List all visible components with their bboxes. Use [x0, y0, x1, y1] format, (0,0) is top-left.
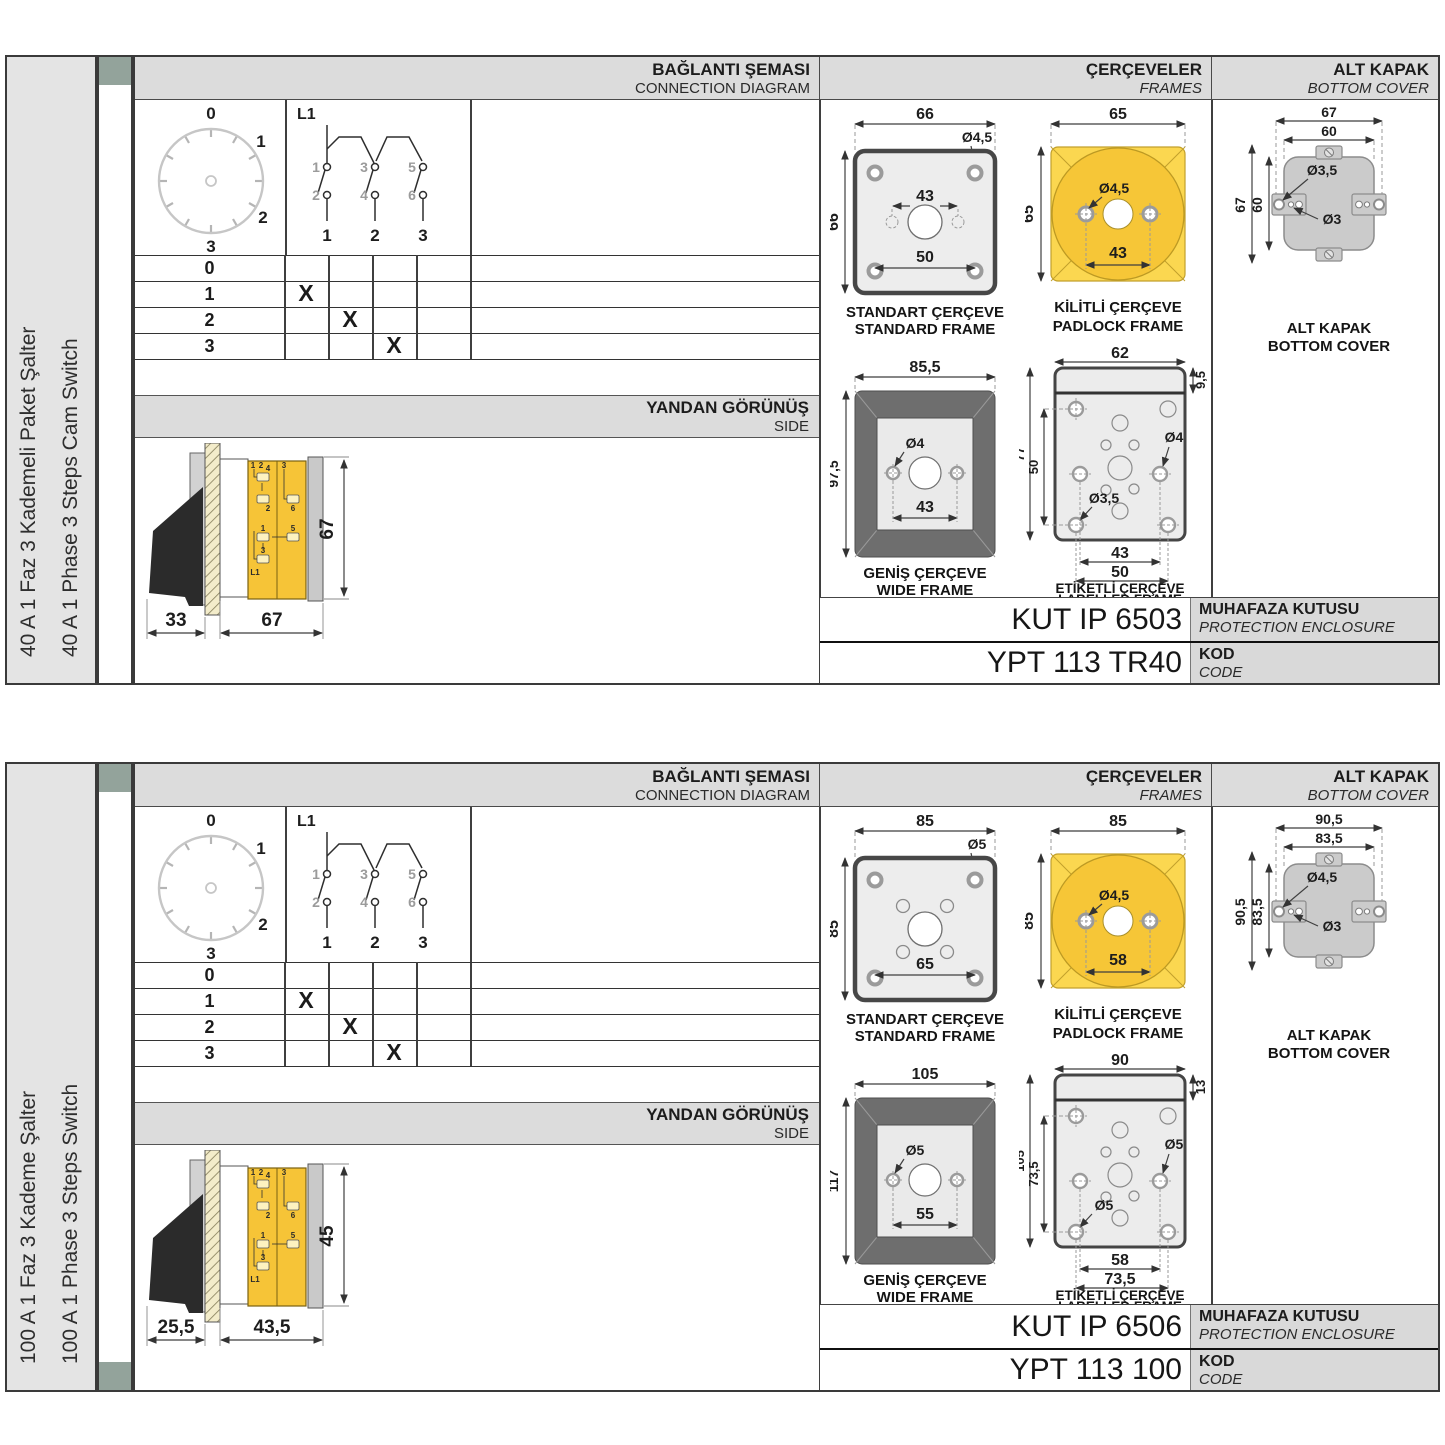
labelled-hole-small-dim: Ø3,5	[1089, 490, 1120, 506]
header-connection-en: CONNECTION DIAGRAM	[135, 787, 810, 805]
table-row: 3 X	[135, 333, 819, 359]
labelled-width-dim: 62	[1111, 347, 1129, 362]
register-mark-bottom	[99, 1362, 131, 1390]
standard-inner-dim: 43	[916, 188, 934, 205]
term-label: 2	[266, 1211, 271, 1220]
terminal-5: 5	[408, 159, 416, 175]
term-label: L1	[250, 1275, 260, 1284]
code-row: YPT 113 TR40 KOD CODE	[820, 641, 1438, 683]
table-row: 1 X	[135, 988, 819, 1014]
padlock-center-hole	[1103, 906, 1133, 936]
row-position: 3	[135, 1041, 284, 1065]
padlock-label-tr: KİLİTLİ ÇERÇEVE	[1054, 299, 1182, 316]
body-depth-dim-label: 43,5	[254, 1317, 291, 1338]
dial-pos-2: 2	[258, 208, 267, 227]
header-frames: ÇERÇEVELER FRAMES	[819, 57, 1211, 100]
wide-width-dim: 85,5	[909, 359, 940, 376]
cover-label-en: BOTTOM COVER	[1268, 1045, 1390, 1062]
dial-pos-1: 1	[256, 839, 265, 858]
terminal-5: 5	[408, 866, 416, 882]
header-frames-en: FRAMES	[820, 80, 1202, 98]
dial-axis	[206, 176, 216, 186]
terminal-6: 6	[408, 894, 416, 910]
header-connection-tr: BAĞLANTI ŞEMASI	[135, 59, 810, 80]
product-code: YPT 113 TR40	[820, 643, 1190, 683]
output-1: 1	[322, 933, 331, 952]
position-dial: 0 1 2 3	[139, 810, 287, 962]
datasheet-main-area: BAĞLANTI ŞEMASI CONNECTION DIAGRAM ÇERÇE…	[133, 55, 1440, 685]
panel-cutaway	[205, 1150, 220, 1322]
padlock-frame-drawing: 85 Ø4,5 58 85 KİLİTLİ ÇERÇEVE PADLOCK FR…	[1025, 812, 1211, 1047]
enclosure-label-en: PROTECTION ENCLOSURE	[1199, 619, 1438, 637]
switching-table: 0 1 X 2 X 3 X	[135, 962, 819, 1067]
term-label: 2	[259, 1168, 264, 1177]
dial-ring	[159, 836, 263, 940]
term-label: 3	[282, 461, 287, 470]
cover-w-inner-dim: 60	[1321, 123, 1337, 139]
padlock-height-dim: 85	[1025, 912, 1037, 930]
connection-circuit: L1 1 2 3 4 5 6 1 2 3	[287, 810, 475, 962]
padlock-height-dim: 65	[1025, 205, 1037, 223]
output-1: 1	[322, 226, 331, 245]
table-row: 0	[135, 255, 819, 281]
wide-label-en: WIDE FRAME	[877, 582, 974, 597]
row-position: 2	[135, 308, 284, 332]
enclosure-row: KUT IP 6506 MUHAFAZA KUTUSU PROTECTION E…	[820, 1304, 1438, 1348]
labelled-bottom-dim2: 73,5	[1104, 1271, 1135, 1288]
term-label: 4	[266, 1171, 271, 1180]
header-cover-tr: ALT KAPAK	[1212, 766, 1429, 787]
standard-label-tr: STANDART ÇERÇEVE	[846, 1011, 1004, 1028]
contact-mark: X	[372, 1039, 416, 1065]
table-row: 0	[135, 962, 819, 988]
wide-height-dim: 117	[830, 1169, 841, 1192]
terminal-1: 1	[312, 866, 320, 882]
row-position: 2	[135, 1015, 284, 1039]
table-row: 2 X	[135, 307, 819, 333]
contact-mark: X	[284, 987, 328, 1013]
product-label-english: 40 A 1 Phase 3 Steps Cam Switch	[59, 338, 83, 657]
standard-hole-dim: Ø5	[968, 836, 987, 852]
standard-height-dim: 85	[830, 920, 842, 938]
header-connection-diagram: BAĞLANTI ŞEMASI CONNECTION DIAGRAM	[135, 57, 819, 100]
switch-handle	[149, 487, 203, 606]
labelled-hole-big-dim: Ø5	[1165, 1136, 1184, 1152]
side-view-title-tr: YANDAN GÖRÜNÜŞ	[135, 1104, 809, 1125]
labelled-frame-drawing: 90 13 Ø5 Ø5	[1019, 1054, 1215, 1312]
terminal-4: 4	[360, 894, 368, 910]
code-label: KOD CODE	[1190, 1350, 1438, 1390]
table-row: 3 X	[135, 1040, 819, 1066]
cover-h-inner-dim: 60	[1249, 197, 1265, 213]
standard-label-en: STANDARD FRAME	[855, 1028, 996, 1045]
product-label-english: 100 A 1 Phase 3 Steps Switch	[59, 1084, 83, 1364]
standard-frame-drawing: 66 Ø4,5 43 50 66 STANDART ÇERÇEV	[830, 105, 1020, 340]
term-label: 4	[266, 464, 271, 473]
table-row: 1 X	[135, 281, 819, 307]
labelled-bottom-dim1: 58	[1111, 1252, 1129, 1269]
dial-axis	[206, 883, 216, 893]
side-view-header: YANDAN GÖRÜNÜŞ SIDE	[135, 395, 819, 438]
datasheet-main-area: BAĞLANTI ŞEMASI CONNECTION DIAGRAM ÇERÇE…	[133, 762, 1440, 1392]
wide-center-hole	[909, 1164, 941, 1196]
term-label: 5	[291, 524, 296, 533]
output-3: 3	[418, 226, 427, 245]
header-frames-tr: ÇERÇEVELER	[820, 59, 1202, 80]
term-label: 3	[261, 546, 266, 555]
terminal-3: 3	[360, 159, 368, 175]
labelled-height-dim: 77	[1019, 447, 1027, 461]
cover-hole-tab-dim: Ø4,5	[1307, 869, 1338, 885]
header-cover-en: BOTTOM COVER	[1212, 80, 1429, 98]
term-label: 1	[261, 1231, 266, 1240]
wide-frame-drawing: 85,5 Ø4 43 97,5 GENİŞ ÇERÇEVE	[830, 357, 1020, 597]
padlock-label-en: PADLOCK FRAME	[1053, 318, 1184, 335]
standard-label-tr: STANDART ÇERÇEVE	[846, 304, 1004, 321]
enclosure-code: KUT IP 6503	[820, 598, 1190, 641]
header-bottom-cover: ALT KAPAK BOTTOM COVER	[1211, 57, 1438, 100]
position-dial: 0 1 2 3	[139, 103, 287, 255]
term-label: 6	[291, 504, 296, 513]
table-col-line	[416, 255, 418, 359]
labelled-inner-v-dim: 50	[1026, 460, 1041, 474]
padlock-width-dim: 65	[1109, 106, 1127, 123]
term-label: 3	[261, 1253, 266, 1262]
product-panel: 40 A 1 Faz 3 Kademeli Paket Şalter 40 A …	[0, 55, 1445, 685]
header-bottom-cover: ALT KAPAK BOTTOM COVER	[1211, 764, 1438, 807]
header-connection-en: CONNECTION DIAGRAM	[135, 80, 810, 98]
output-2: 2	[370, 226, 379, 245]
wide-hole-dim: Ø5	[906, 1142, 925, 1158]
labelled-width-dim: 90	[1111, 1054, 1129, 1069]
code-label-en: CODE	[1199, 1371, 1438, 1389]
cover-label-tr: ALT KAPAK	[1287, 320, 1372, 337]
enclosure-label-tr: MUHAFAZA KUTUSU	[1199, 600, 1438, 619]
row-position: 1	[135, 282, 284, 306]
height-dim-label: 67	[317, 518, 338, 539]
cover-hole-tab-dim: Ø3,5	[1307, 162, 1338, 178]
row-position: 3	[135, 334, 284, 358]
cover-h-outer-dim: 67	[1232, 197, 1248, 213]
header-frames-en: FRAMES	[820, 787, 1202, 805]
terminal-2: 2	[312, 187, 320, 203]
table-col-line	[416, 962, 418, 1066]
padlock-width-dim: 85	[1109, 813, 1127, 830]
wide-frame-drawing: 105 Ø5 55 117 GENİŞ ÇERÇEVE	[830, 1064, 1020, 1304]
terminal-6: 6	[408, 187, 416, 203]
cover-h-outer-dim: 90,5	[1232, 898, 1248, 925]
standard-center-hole	[908, 205, 942, 239]
term-label: 2	[266, 504, 271, 513]
side-view-title-en: SIDE	[135, 1125, 809, 1143]
table-col-line	[284, 962, 286, 1066]
dial-pos-3: 3	[206, 237, 215, 255]
standard-frame-drawing: 85 Ø5 65 85 STANDART ÇERÇEVE	[830, 812, 1020, 1047]
term-label: 5	[291, 1231, 296, 1240]
binding-strip	[97, 762, 133, 1392]
labelled-strip-dim: 9,5	[1193, 371, 1208, 389]
connection-circuit: L1 1 2 3 4 5 6 1 2 3	[287, 103, 475, 255]
labelled-bottom-dim1: 43	[1111, 545, 1129, 562]
cover-label-en: BOTTOM COVER	[1268, 338, 1390, 355]
padlock-holes-dim: 43	[1109, 245, 1127, 262]
term-label: 1	[251, 461, 256, 470]
code-label: KOD CODE	[1190, 643, 1438, 683]
enclosure-label: MUHAFAZA KUTUSU PROTECTION ENCLOSURE	[1190, 598, 1438, 641]
padlock-label-tr: KİLİTLİ ÇERÇEVE	[1054, 1006, 1182, 1023]
contact-mark: X	[372, 332, 416, 358]
standard-center-hole	[908, 912, 942, 946]
row-position: 0	[135, 963, 284, 987]
enclosure-label-tr: MUHAFAZA KUTUSU	[1199, 1307, 1438, 1326]
shaft-housing	[220, 459, 248, 597]
product-code: YPT 113 100	[820, 1350, 1190, 1390]
contact-mark: X	[328, 1013, 372, 1039]
wide-label-en: WIDE FRAME	[877, 1289, 974, 1304]
terminal-2: 2	[312, 894, 320, 910]
dial-pos-0: 0	[206, 104, 215, 123]
row-position: 0	[135, 256, 284, 280]
height-dim-label: 45	[317, 1225, 338, 1247]
standard-height-dim: 66	[830, 213, 842, 231]
term-label: 6	[291, 1211, 296, 1220]
body-depth-dim-label: 67	[261, 610, 282, 631]
cover-h-inner-dim: 83,5	[1249, 898, 1265, 925]
header-frames-tr: ÇERÇEVELER	[820, 766, 1202, 787]
padlock-hole-dim: Ø4,5	[1099, 180, 1130, 196]
labelled-bottom-dim2: 50	[1111, 564, 1129, 581]
padlock-center-hole	[1103, 199, 1133, 229]
cover-w-outer-dim: 90,5	[1315, 812, 1342, 827]
table-col-line	[284, 255, 286, 359]
cover-w-inner-dim: 83,5	[1315, 830, 1342, 846]
output-3: 3	[418, 933, 427, 952]
code-label-tr: KOD	[1199, 645, 1438, 664]
labelled-inner-v-dim: 73,5	[1026, 1161, 1041, 1186]
padlock-label-en: PADLOCK FRAME	[1053, 1025, 1184, 1042]
term-label: 2	[259, 461, 264, 470]
enclosure-row: KUT IP 6503 MUHAFAZA KUTUSU PROTECTION E…	[820, 597, 1438, 641]
enclosure-code: KUT IP 6506	[820, 1305, 1190, 1348]
bottom-cover-drawing: 67 60 67 60	[1232, 105, 1437, 357]
contact-mark: X	[328, 306, 372, 332]
product-panel: 100 A 1 Faz 3 Kademe Şalter 100 A 1 Phas…	[0, 762, 1445, 1392]
table-col-line	[328, 962, 330, 1066]
product-label-turkish: 100 A 1 Faz 3 Kademe Şalter	[17, 1091, 41, 1364]
header-connection-diagram: BAĞLANTI ŞEMASI CONNECTION DIAGRAM	[135, 764, 819, 807]
header-connection-tr: BAĞLANTI ŞEMASI	[135, 766, 810, 787]
panel-cutaway	[205, 443, 220, 615]
product-label-strip: 40 A 1 Faz 3 Kademeli Paket Şalter 40 A …	[5, 55, 97, 685]
side-view-title-tr: YANDAN GÖRÜNÜŞ	[135, 397, 809, 418]
dial-pos-3: 3	[206, 944, 215, 962]
handle-depth-dim-label: 33	[165, 610, 186, 631]
dial-pos-1: 1	[256, 132, 265, 151]
labelled-strip-dim: 13	[1193, 1080, 1208, 1094]
header-cover-tr: ALT KAPAK	[1212, 59, 1429, 80]
table-col-line	[372, 962, 374, 1066]
term-label: 1	[261, 524, 266, 533]
binding-strip	[97, 55, 133, 685]
side-view-header: YANDAN GÖRÜNÜŞ SIDE	[135, 1102, 819, 1145]
row-position: 1	[135, 989, 284, 1013]
product-label-turkish: 40 A 1 Faz 3 Kademeli Paket Şalter	[17, 327, 41, 657]
dial-pos-0: 0	[206, 811, 215, 830]
enclosure-label-en: PROTECTION ENCLOSURE	[1199, 1326, 1438, 1344]
wide-label-tr: GENİŞ ÇERÇEVE	[863, 1272, 986, 1289]
term-label: 1	[251, 1168, 256, 1177]
labelled-hole-small-dim: Ø5	[1095, 1197, 1114, 1213]
cover-hole-small-dim: Ø3	[1323, 918, 1342, 934]
circuit-line-label: L1	[297, 106, 316, 123]
wide-holes-dim: 55	[916, 1206, 934, 1223]
cover-label-tr: ALT KAPAK	[1287, 1027, 1372, 1044]
switch-handle	[149, 1194, 203, 1313]
standard-width-dim: 85	[916, 813, 934, 830]
frames-column-divider	[819, 807, 821, 1390]
table-row: 2 X	[135, 1014, 819, 1040]
code-label-en: CODE	[1199, 664, 1438, 682]
header-cover-en: BOTTOM COVER	[1212, 787, 1429, 805]
table-col-line	[328, 255, 330, 359]
side-view-drawing: 1 2 4 2 3 6 1 5 3 L1 45 25,5 43,5	[141, 1150, 661, 1388]
standard-outer-dim: 50	[916, 249, 934, 266]
circuit-line-label: L1	[297, 813, 316, 830]
dial-pos-2: 2	[258, 915, 267, 934]
code-row: YPT 113 100 KOD CODE	[820, 1348, 1438, 1390]
terminal-3: 3	[360, 866, 368, 882]
header-frames: ÇERÇEVELER FRAMES	[819, 764, 1211, 807]
term-label: 3	[282, 1168, 287, 1177]
terminal-4: 4	[360, 187, 368, 203]
padlock-frame-drawing: 65 Ø4,5 43 65 KİLİTLİ ÇERÇEVE PADLOCK FR…	[1025, 105, 1211, 340]
handle-depth-dim-label: 25,5	[158, 1317, 195, 1338]
table-col-line	[372, 255, 374, 359]
dial-ring	[159, 129, 263, 233]
side-view-title-en: SIDE	[135, 418, 809, 436]
cover-w-outer-dim: 67	[1321, 105, 1337, 120]
wide-center-hole	[909, 457, 941, 489]
shaft-housing	[220, 1166, 248, 1304]
code-label-tr: KOD	[1199, 1352, 1438, 1371]
padlock-holes-dim: 58	[1109, 952, 1127, 969]
frames-column-divider	[819, 100, 821, 683]
labelled-frame-drawing: 62 9,5 Ø4 Ø3,5	[1019, 347, 1215, 605]
product-label-strip: 100 A 1 Faz 3 Kademe Şalter 100 A 1 Phas…	[5, 762, 97, 1392]
cover-hole-small-dim: Ø3	[1323, 211, 1342, 227]
panel-slot-40A: 40 A 1 Faz 3 Kademeli Paket Şalter 40 A …	[0, 55, 1445, 685]
output-2: 2	[370, 933, 379, 952]
padlock-hole-dim: Ø4,5	[1099, 887, 1130, 903]
contact-mark: X	[284, 280, 328, 306]
panel-slot-100A: 100 A 1 Faz 3 Kademe Şalter 100 A 1 Phas…	[0, 762, 1445, 1392]
bottom-cover-drawing: 90,5 83,5 90,5 83,5	[1232, 812, 1437, 1064]
enclosure-label: MUHAFAZA KUTUSU PROTECTION ENCLOSURE	[1190, 1305, 1438, 1348]
wide-width-dim: 105	[912, 1066, 939, 1083]
standard-label-en: STANDARD FRAME	[855, 321, 996, 338]
standard-width-dim: 66	[916, 106, 934, 123]
labelled-hole-big-dim: Ø4	[1165, 429, 1184, 445]
standard-outer-dim: 65	[916, 956, 934, 973]
wide-height-dim: 97,5	[830, 460, 841, 487]
wide-label-tr: GENİŞ ÇERÇEVE	[863, 565, 986, 582]
register-mark-top	[99, 764, 131, 792]
term-label: L1	[250, 568, 260, 577]
standard-hole-dim: Ø4,5	[962, 129, 993, 145]
terminal-1: 1	[312, 159, 320, 175]
side-view-drawing: 1 2 4 2 3 6 1 5 3 L1 67 33 67	[141, 443, 661, 681]
wide-holes-dim: 43	[916, 499, 934, 516]
register-mark-top	[99, 57, 131, 85]
wide-hole-dim: Ø4	[906, 435, 925, 451]
switching-table: 0 1 X 2 X 3 X	[135, 255, 819, 360]
